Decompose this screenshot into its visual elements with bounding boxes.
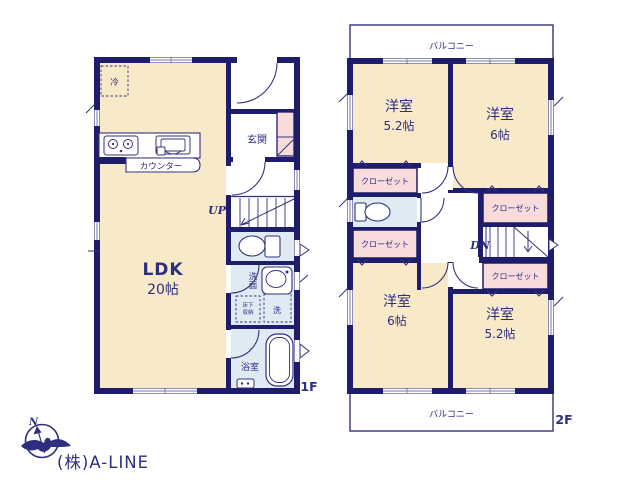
- room-ne-label: 洋室: [486, 106, 514, 123]
- floor-2-plan: バルコニー バルコニー 洋室 5.2帖 洋室 6帖 洋室 6帖 洋室 5.2帖 …: [339, 25, 573, 431]
- closet-w-label: クローゼット: [361, 239, 409, 249]
- laundry-label: 洗: [273, 305, 281, 315]
- floor-plan-drawing: LDK 20帖 玄関 カウンター 冷 UP 洗面 床下 収納 洗 浴室 1F: [0, 0, 640, 480]
- room-nw-label: 洋室: [385, 98, 413, 115]
- room-ne-floor: [453, 64, 548, 188]
- closet-e-label: クローゼット: [492, 203, 540, 213]
- genkan-label: 玄関: [247, 133, 267, 146]
- floor-2-label: 2F: [555, 412, 572, 427]
- underfloor-label-1: 床下: [242, 301, 254, 309]
- room-ne-size: 6帖: [490, 127, 510, 142]
- floor-1-label: 1F: [300, 379, 317, 394]
- closet-nw-label: クローゼット: [361, 176, 409, 186]
- closet-se-label: クローゼット: [492, 271, 540, 281]
- room-nw-size: 5.2帖: [383, 118, 414, 133]
- underfloor-label-2: 収納: [242, 308, 254, 316]
- room-se-size: 5.2帖: [484, 326, 515, 341]
- toilet-2f-fixture: [355, 203, 390, 221]
- balcony-top-label: バルコニー: [429, 41, 474, 52]
- bird-logo-icon: [21, 438, 71, 452]
- company-name: (株)A-LINE: [57, 453, 149, 472]
- stairs-down-label: DN: [469, 239, 491, 252]
- room-sw-size: 6帖: [387, 313, 407, 328]
- toilet-2f-door-arc: [421, 198, 444, 222]
- fridge-label: 冷: [110, 77, 119, 88]
- shoe-cabinet: [277, 112, 294, 156]
- stairs-up-label: UP: [208, 204, 227, 217]
- floor-plan-page: LDK 20帖 玄関 カウンター 冷 UP 洗面 床下 収納 洗 浴室 1F: [0, 0, 640, 480]
- toilet-fixture: [239, 236, 265, 256]
- toilet-tank: [265, 236, 280, 257]
- room-se-door-arc: [453, 262, 478, 288]
- floor-1-plan: LDK 20帖 玄関 カウンター 冷 UP 洗面 床下 収納 洗 浴室 1F: [86, 57, 318, 394]
- room-nw-door-arc: [422, 166, 448, 193]
- ldk-size-label: 20帖: [147, 282, 179, 298]
- counter-label: カウンター: [140, 162, 183, 172]
- ldk-label: LDK: [142, 260, 183, 280]
- stairs-down: [486, 227, 548, 257]
- washroom-label: 洗面: [247, 271, 257, 290]
- compass-icon: N: [21, 417, 71, 458]
- bathtub: [266, 334, 293, 386]
- ldk-floor: [100, 63, 227, 388]
- room-se-label: 洋室: [486, 306, 514, 323]
- room-sw-label: 洋室: [383, 293, 411, 310]
- balcony-bottom-label: バルコニー: [429, 409, 474, 420]
- bath-label: 浴室: [241, 361, 259, 373]
- compass-north-label: N: [28, 417, 39, 428]
- bath-counter: [237, 379, 254, 388]
